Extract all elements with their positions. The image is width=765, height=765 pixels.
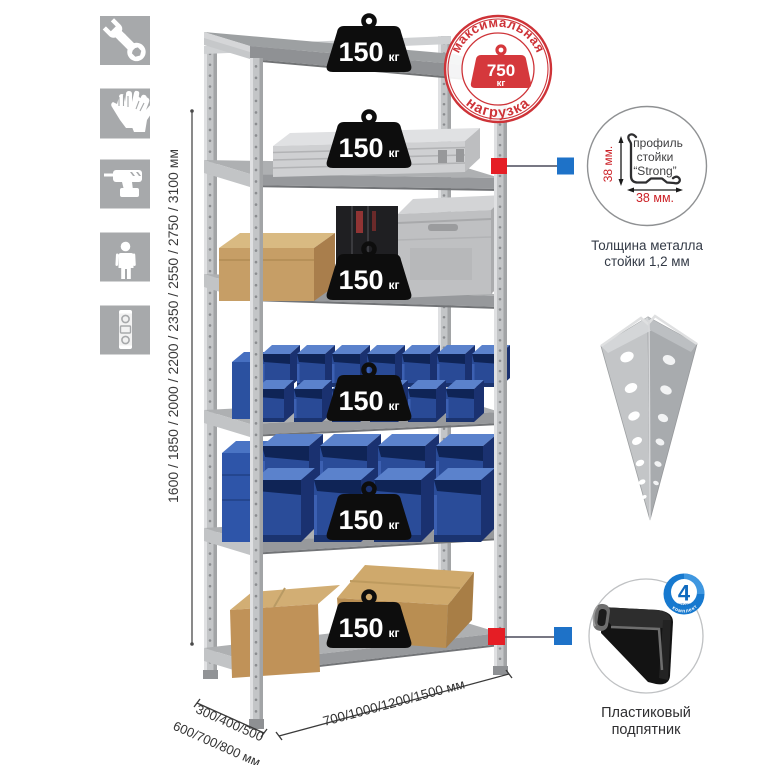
svg-text:штуки: штуки: [678, 603, 690, 607]
svg-text:38 мм.: 38 мм.: [636, 191, 674, 205]
svg-text:стойки 1,2 мм: стойки 1,2 мм: [604, 254, 689, 269]
svg-text:1600 / 1850 / 2000 / 2200 / 23: 1600 / 1850 / 2000 / 2200 / 2350 / 2550 …: [165, 149, 181, 503]
svg-text:38 мм.: 38 мм.: [601, 146, 615, 183]
svg-text:профиль: профиль: [633, 136, 683, 150]
svg-text:Толщина металла: Толщина металла: [591, 238, 703, 253]
svg-text:Пластиковый: Пластиковый: [601, 705, 691, 721]
svg-text:“Strong”: “Strong”: [633, 164, 676, 178]
svg-text:кг: кг: [497, 78, 506, 89]
svg-text:подпятник: подпятник: [612, 722, 682, 738]
svg-text:стойки: стойки: [637, 150, 674, 164]
